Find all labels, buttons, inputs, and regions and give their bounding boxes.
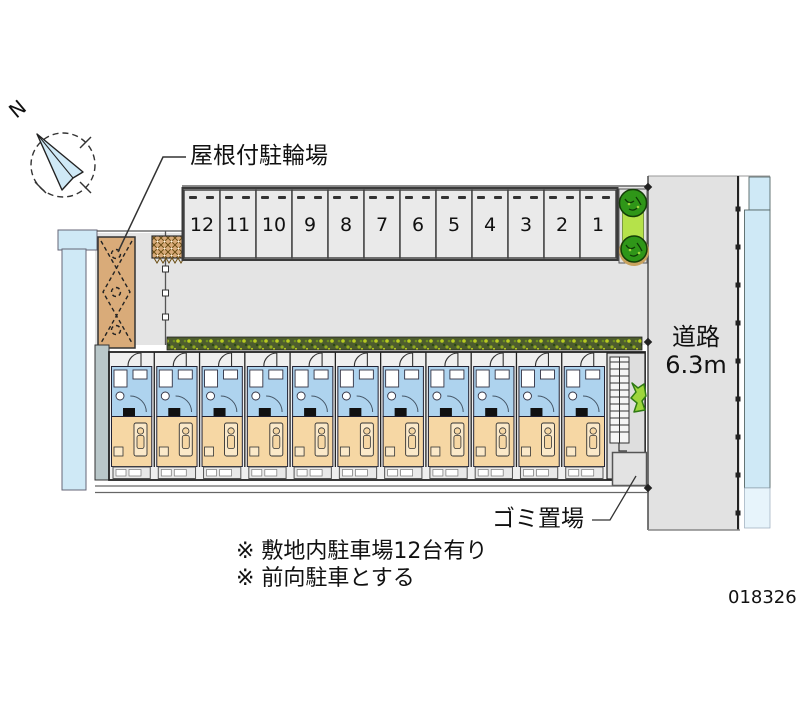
- bush-icon: [620, 190, 647, 217]
- apartment-unit: [562, 352, 605, 479]
- parking-stall: 8: [328, 190, 364, 258]
- compass: [31, 133, 95, 197]
- balcony: [158, 467, 195, 479]
- site-plan-page: 121110987654321: [0, 0, 800, 727]
- balcony: [339, 467, 376, 479]
- parking-stall: 9: [292, 190, 328, 258]
- apartment-unit: [381, 352, 424, 479]
- parking-area: 121110987654321: [184, 190, 616, 258]
- road-label: 道路: [660, 324, 732, 350]
- building-west-wall: [95, 345, 109, 480]
- balcony: [566, 467, 603, 479]
- balcony: [385, 467, 422, 479]
- road-width-label: 6.3m: [656, 352, 736, 378]
- balcony: [520, 467, 557, 479]
- south-boundary: [95, 486, 649, 493]
- parking-stall: 6: [400, 190, 436, 258]
- parking-stall-number: 5: [448, 214, 460, 236]
- parking-stall: 10: [256, 190, 292, 258]
- parking-stall-number: 11: [226, 214, 250, 236]
- parking-stall: 4: [472, 190, 508, 258]
- balcony: [475, 467, 512, 479]
- parking-stall: 3: [508, 190, 544, 258]
- balcony: [249, 467, 286, 479]
- parking-stall: 11: [220, 190, 256, 258]
- apartment-unit: [112, 353, 152, 479]
- parking-stall: 1: [580, 190, 616, 258]
- parking-stall-number: 6: [412, 214, 424, 236]
- parking-stall-number: 8: [340, 214, 352, 236]
- apartment-unit: [471, 352, 514, 479]
- bush-icon: [621, 236, 647, 262]
- note-parking-direction: ※ 前向駐車とする: [236, 567, 415, 591]
- parking-stall-number: 10: [262, 214, 286, 236]
- apartment-unit: [290, 352, 333, 479]
- balcony: [113, 467, 150, 479]
- parking-stall-number: 3: [520, 214, 532, 236]
- apartment-unit: [200, 352, 243, 479]
- parking-stall-number: 1: [592, 214, 604, 236]
- parking-stall-number: 7: [376, 214, 388, 236]
- parking-stall: 12: [184, 190, 220, 258]
- garbage-area-box: [613, 453, 647, 486]
- planting-strip: [619, 189, 649, 266]
- parking-stall-number: 9: [304, 214, 316, 236]
- building: [95, 345, 646, 480]
- apartment-unit: [154, 352, 197, 479]
- plan-number: 018326: [728, 588, 797, 608]
- parking-stall: 2: [544, 190, 580, 258]
- parking-stall-number: 4: [484, 214, 496, 236]
- balcony: [430, 467, 467, 479]
- parking-stall: 5: [436, 190, 472, 258]
- apartment-unit: [335, 352, 378, 479]
- balcony: [294, 467, 331, 479]
- parking-stall-number: 12: [190, 214, 214, 236]
- garbage-label: ゴミ置場: [492, 507, 584, 532]
- waterway-west: [58, 230, 97, 490]
- apartment-unit: [426, 352, 469, 479]
- hedge: [167, 337, 642, 350]
- parking-stall-number: 2: [556, 214, 568, 236]
- apartment-unit: [245, 352, 288, 479]
- note-parking-count: ※ 敷地内駐車場12台有り: [236, 540, 487, 564]
- parking-stall: 7: [364, 190, 400, 258]
- apartment-units: [112, 352, 605, 479]
- north-arrow-icon: [37, 134, 83, 190]
- bicycle-parking-label: 屋根付駐輪場: [190, 144, 328, 169]
- bicycle-parking-area: [98, 237, 135, 348]
- apartment-unit: [516, 352, 559, 479]
- waterway-east: [745, 177, 771, 528]
- balcony: [204, 467, 241, 479]
